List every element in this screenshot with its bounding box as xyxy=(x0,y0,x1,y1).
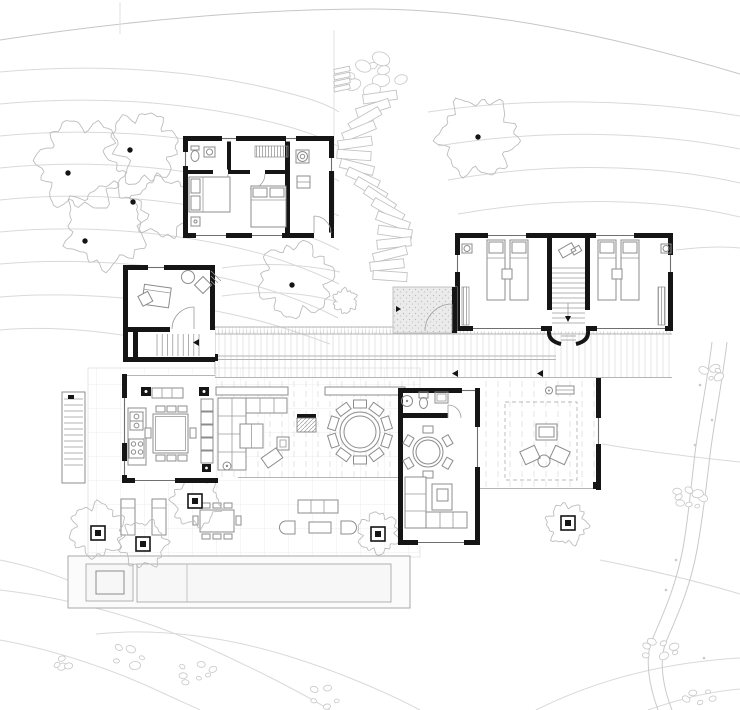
sideboard xyxy=(152,388,183,398)
rock xyxy=(205,673,211,678)
roof-edge-beam xyxy=(216,387,288,395)
chair xyxy=(354,456,367,464)
rock xyxy=(642,653,649,659)
tree-canopy xyxy=(333,287,358,313)
contour-line xyxy=(458,202,740,217)
rock xyxy=(692,489,704,498)
pebble-dot xyxy=(711,419,714,422)
exterior-stair-treads xyxy=(64,399,83,465)
contour-line xyxy=(438,134,740,149)
outdoor-sofa xyxy=(298,500,338,513)
chair xyxy=(354,400,367,408)
stair-hall-wall xyxy=(585,238,590,310)
rock xyxy=(689,690,697,696)
stream-bank xyxy=(648,342,712,710)
deck-walkway xyxy=(213,327,672,378)
roof-edge-beam xyxy=(325,387,405,395)
floor-plan-canvas xyxy=(0,0,740,710)
rock xyxy=(354,58,373,75)
walkway-decking xyxy=(215,332,672,377)
rock xyxy=(179,663,186,670)
fireplace xyxy=(297,414,316,432)
rock xyxy=(125,644,137,654)
exterior-stair xyxy=(62,392,85,483)
rock xyxy=(58,655,66,662)
dining-set xyxy=(145,406,196,461)
twin-bed xyxy=(510,240,528,300)
side-table xyxy=(277,437,289,450)
tree-trunk xyxy=(130,199,135,204)
path-step xyxy=(338,136,373,150)
rock xyxy=(698,365,710,376)
corner-post xyxy=(593,482,601,489)
pebble-dot xyxy=(703,657,706,660)
rock xyxy=(334,699,340,704)
pebble-dot xyxy=(665,589,668,592)
rock xyxy=(323,685,332,692)
contour-line xyxy=(222,293,338,302)
rock xyxy=(114,643,123,652)
twin-bed xyxy=(621,240,639,300)
planter-trunk xyxy=(565,520,571,526)
pool-area xyxy=(68,556,410,608)
round-table xyxy=(340,412,380,452)
contour-line xyxy=(602,444,740,462)
pebble-dot xyxy=(675,559,678,562)
rock xyxy=(182,679,190,685)
rock xyxy=(113,659,119,664)
closet xyxy=(658,287,665,325)
bedroom-wing xyxy=(455,233,674,345)
contour-line xyxy=(428,102,740,116)
contour-line xyxy=(0,68,339,112)
tree-trunk xyxy=(127,147,132,152)
guest-house xyxy=(183,136,335,239)
rock xyxy=(681,695,691,704)
rock xyxy=(179,673,187,679)
chair xyxy=(423,426,433,433)
interior-wall xyxy=(227,141,231,170)
rock xyxy=(694,504,700,509)
wardrobe xyxy=(255,146,288,157)
outdoor-dining-table xyxy=(200,510,234,532)
tree-canopy xyxy=(259,240,335,319)
contour-line xyxy=(0,640,200,710)
rock xyxy=(676,500,685,507)
outdoor-chair xyxy=(341,521,357,534)
path-step xyxy=(373,270,408,281)
rock xyxy=(129,661,141,670)
rock xyxy=(393,73,408,86)
tree-canopy xyxy=(103,113,178,185)
pebble-dot xyxy=(699,384,702,387)
rock xyxy=(197,661,205,667)
rock xyxy=(139,655,145,661)
contour-line xyxy=(676,247,740,250)
double-bed xyxy=(189,177,230,212)
closet xyxy=(462,287,469,325)
study xyxy=(123,265,221,363)
kitchen-dining xyxy=(122,374,218,483)
rock xyxy=(310,698,316,703)
contour-line xyxy=(222,265,340,272)
coffee-table xyxy=(432,484,452,510)
contour-line xyxy=(536,658,740,710)
double-bed xyxy=(251,186,286,227)
round-table xyxy=(413,437,443,467)
stair-hall-wall xyxy=(547,238,552,310)
planter-trunk xyxy=(140,541,146,547)
planter-trunk xyxy=(375,531,381,537)
rock xyxy=(685,502,692,508)
outdoor-coffee-table xyxy=(309,522,331,533)
lap-pool xyxy=(137,564,391,602)
rock xyxy=(323,703,331,710)
tree-trunk xyxy=(82,238,87,243)
tree-trunk xyxy=(475,134,480,139)
spa-tub xyxy=(86,564,133,601)
rock xyxy=(714,368,721,374)
interior-wall xyxy=(188,170,290,174)
entry-vestibule-gravel xyxy=(393,287,457,333)
dining-table xyxy=(153,414,188,453)
rock xyxy=(708,376,714,381)
rock xyxy=(658,650,670,661)
rock xyxy=(708,695,716,702)
tree-trunk xyxy=(65,170,70,175)
rock xyxy=(697,699,704,705)
nightstand xyxy=(612,269,622,279)
rock xyxy=(309,685,319,693)
nightstand xyxy=(502,269,512,279)
family-room xyxy=(398,388,480,546)
pebble-dot xyxy=(694,444,697,447)
stepped-garden-path xyxy=(334,49,413,281)
rock xyxy=(196,676,202,680)
floor-plan-page xyxy=(0,0,740,710)
stream-bank xyxy=(662,342,727,710)
outdoor-chair xyxy=(280,521,296,534)
rock xyxy=(208,665,218,673)
planter-trunk xyxy=(95,530,101,536)
planter-trunk xyxy=(192,498,198,504)
tree-trunk xyxy=(289,282,294,287)
stair-marker xyxy=(68,395,74,399)
rock xyxy=(668,642,679,651)
nightstand xyxy=(191,217,200,226)
contour-line xyxy=(600,560,740,594)
